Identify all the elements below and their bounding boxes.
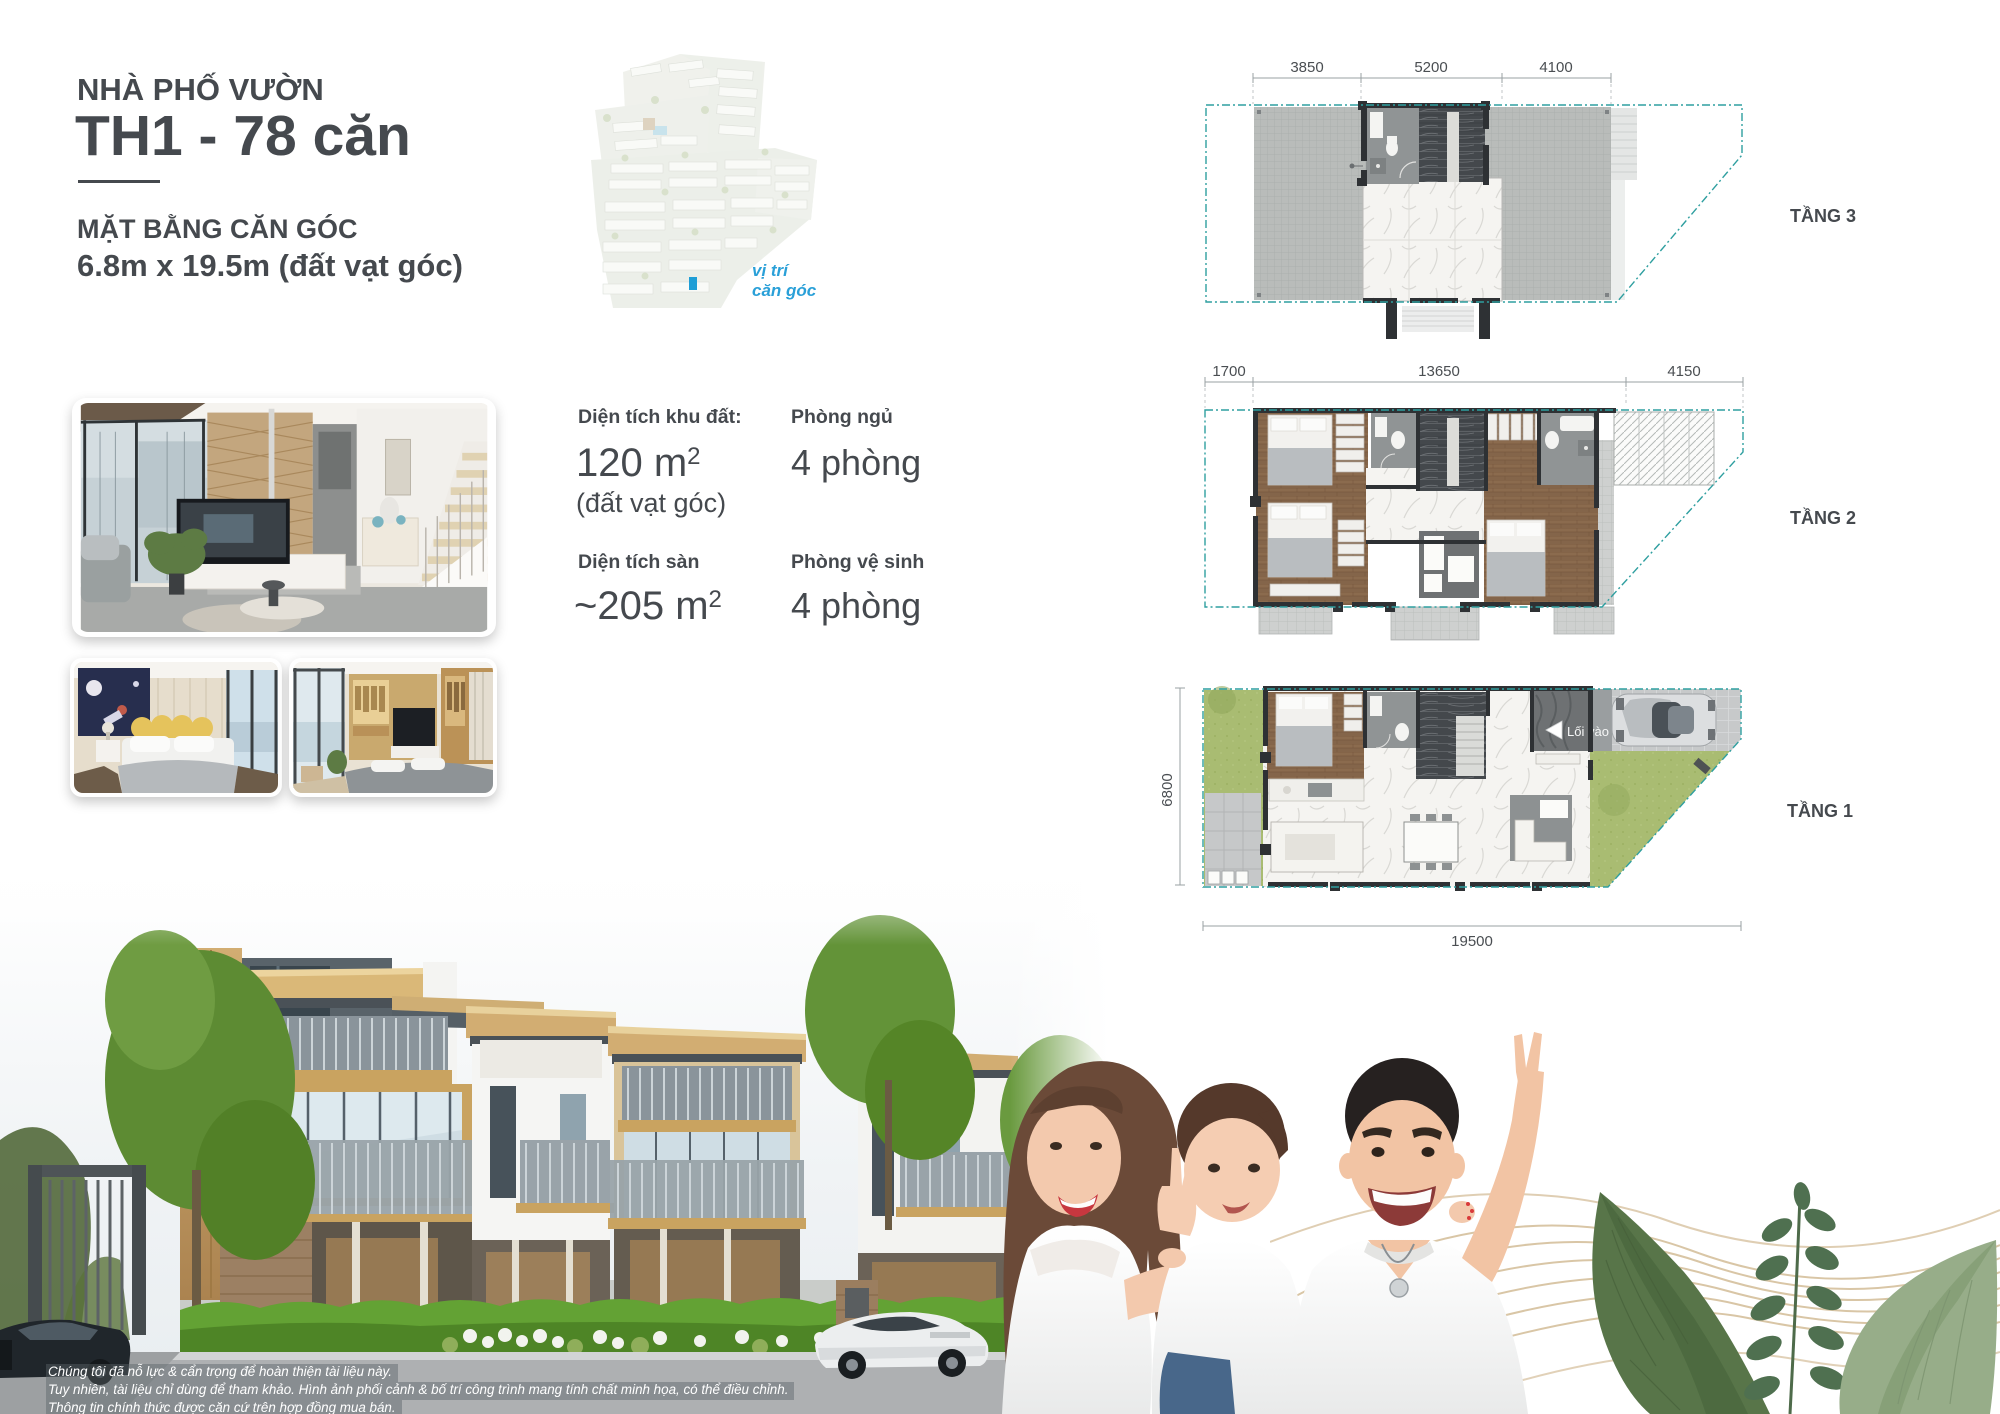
svg-text:5200: 5200 <box>1414 59 1447 76</box>
svg-text:19500: 19500 <box>1451 933 1493 950</box>
svg-text:4100: 4100 <box>1539 59 1572 76</box>
svg-text:Lối vào: Lối vào <box>1567 724 1609 739</box>
svg-text:6800: 6800 <box>1159 773 1176 806</box>
svg-text:1700: 1700 <box>1212 363 1245 380</box>
svg-text:4150: 4150 <box>1667 363 1700 380</box>
svg-text:13650: 13650 <box>1418 363 1460 380</box>
svg-text:3850: 3850 <box>1290 59 1323 76</box>
